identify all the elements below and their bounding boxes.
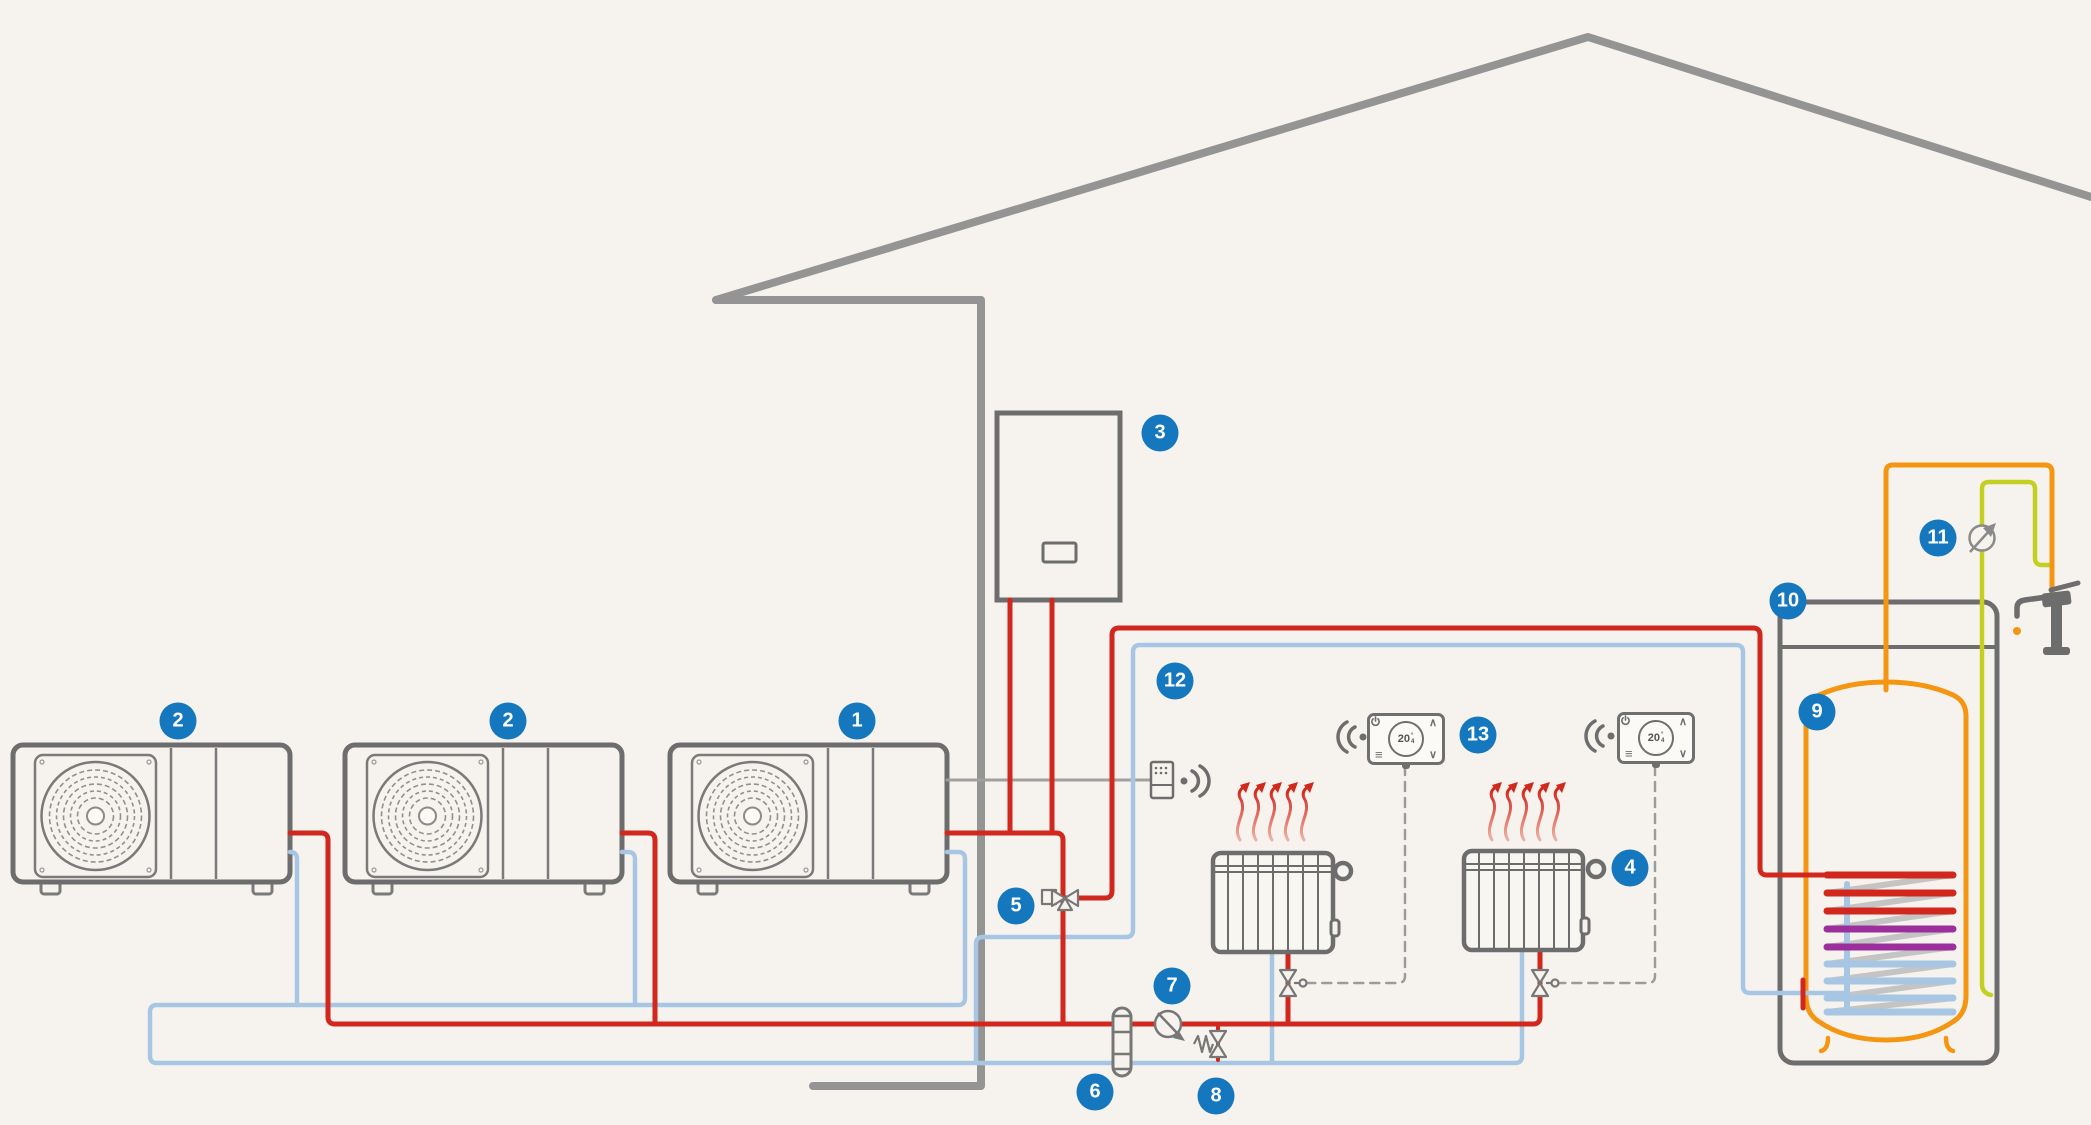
heat-pump-2-mid <box>345 745 622 894</box>
boiler <box>997 413 1120 600</box>
badge-11-check-valve: 11 <box>1920 520 1957 557</box>
power-icon <box>1370 716 1381 727</box>
radiator-1 <box>1213 782 1351 952</box>
wifi-arcs-thermostat-1 <box>1338 722 1366 752</box>
tap-icon <box>2013 583 2078 655</box>
temperature-decimal: 4 <box>1411 739 1414 745</box>
temperature-value: 20 <box>1648 733 1660 744</box>
temperature-value: 20 <box>1398 734 1410 745</box>
hp-mid-flow <box>622 833 655 1024</box>
badge-7-pump: 7 <box>1154 968 1191 1005</box>
unit-body <box>13 745 290 882</box>
menu-icon: ≡ <box>1375 748 1383 761</box>
chevron-up-icon: ∧ <box>1429 717 1437 729</box>
heat-pump-2-left <box>13 745 290 894</box>
radiator-valve-icon-1 <box>1280 970 1307 996</box>
mixing-valve-icon <box>1042 890 1078 910</box>
chevron-up-icon: ∧ <box>1679 716 1687 728</box>
unit-body <box>670 745 947 882</box>
air-vent-icon <box>1335 863 1351 879</box>
thermostat-stem <box>1652 763 1660 768</box>
temperature-dial: 20°4 <box>1388 721 1424 757</box>
roof-line <box>716 37 2091 300</box>
badge-2-cascade-left: 2 <box>160 703 197 740</box>
radiator-2 <box>1464 782 1604 950</box>
radiator-valve-icon-2 <box>1532 970 1559 996</box>
badge-4-radiator-vent: 4 <box>1612 850 1649 887</box>
chevron-down-icon: ∨ <box>1679 748 1687 760</box>
side-tab <box>1581 918 1589 934</box>
heat-pump-units <box>13 745 947 894</box>
thermostat-stem <box>1402 764 1410 769</box>
heat-waves-icon <box>1489 786 1561 840</box>
badge-13-thermostat: 13 <box>1460 717 1497 754</box>
thermostat-1: ≡ ∧ ∨ 20°4 <box>1367 713 1445 765</box>
badge-9-coil-cylinder: 9 <box>1799 694 1836 731</box>
pump-icon <box>1155 1011 1185 1041</box>
badge-3-boiler: 3 <box>1142 415 1179 452</box>
heating-system-schematic: ≡ ∧ ∨ 20°4 ≡ ∧ ∨ 20°4 1 2 2 3 4 5 6 7 8 … <box>0 0 2091 1125</box>
badge-6-separator: 6 <box>1077 1074 1114 1111</box>
tank-circuit-return <box>976 645 1845 1063</box>
temperature-decimal: 4 <box>1661 738 1664 744</box>
air-vent-icon <box>1588 861 1604 877</box>
chevron-down-icon: ∨ <box>1429 749 1437 761</box>
signal-dot <box>1181 778 1188 785</box>
thermostat-2: ≡ ∧ ∨ 20°4 <box>1617 712 1695 764</box>
wifi-arcs-thermostat-2 <box>1586 721 1615 751</box>
badge-10-tank: 10 <box>1770 583 1807 620</box>
menu-icon: ≡ <box>1625 747 1633 760</box>
side-tab <box>1331 920 1339 936</box>
badge-8-bypass-valve: 8 <box>1198 1078 1235 1115</box>
wireless-gateway-icon <box>1151 762 1209 798</box>
heat-waves-icon <box>1237 786 1309 840</box>
badge-5-mixing-valve: 5 <box>998 888 1035 925</box>
badge-2-cascade-mid: 2 <box>490 703 527 740</box>
boiler-body <box>997 413 1120 600</box>
schematic-canvas <box>0 0 2091 1125</box>
water-drip-icon <box>2013 627 2021 635</box>
check-valve-icon <box>1970 523 1997 552</box>
badge-12-circuit: 12 <box>1157 663 1194 700</box>
unit-body <box>345 745 622 882</box>
temperature-dial: 20°4 <box>1638 720 1674 756</box>
badge-1-heat-pump: 1 <box>839 703 876 740</box>
hydraulic-separator-icon <box>1113 1008 1131 1076</box>
heat-pump-1-main <box>670 745 947 894</box>
wall-line <box>716 300 981 1086</box>
bypass-valve-icon <box>1194 1031 1226 1057</box>
power-icon <box>1620 715 1631 726</box>
